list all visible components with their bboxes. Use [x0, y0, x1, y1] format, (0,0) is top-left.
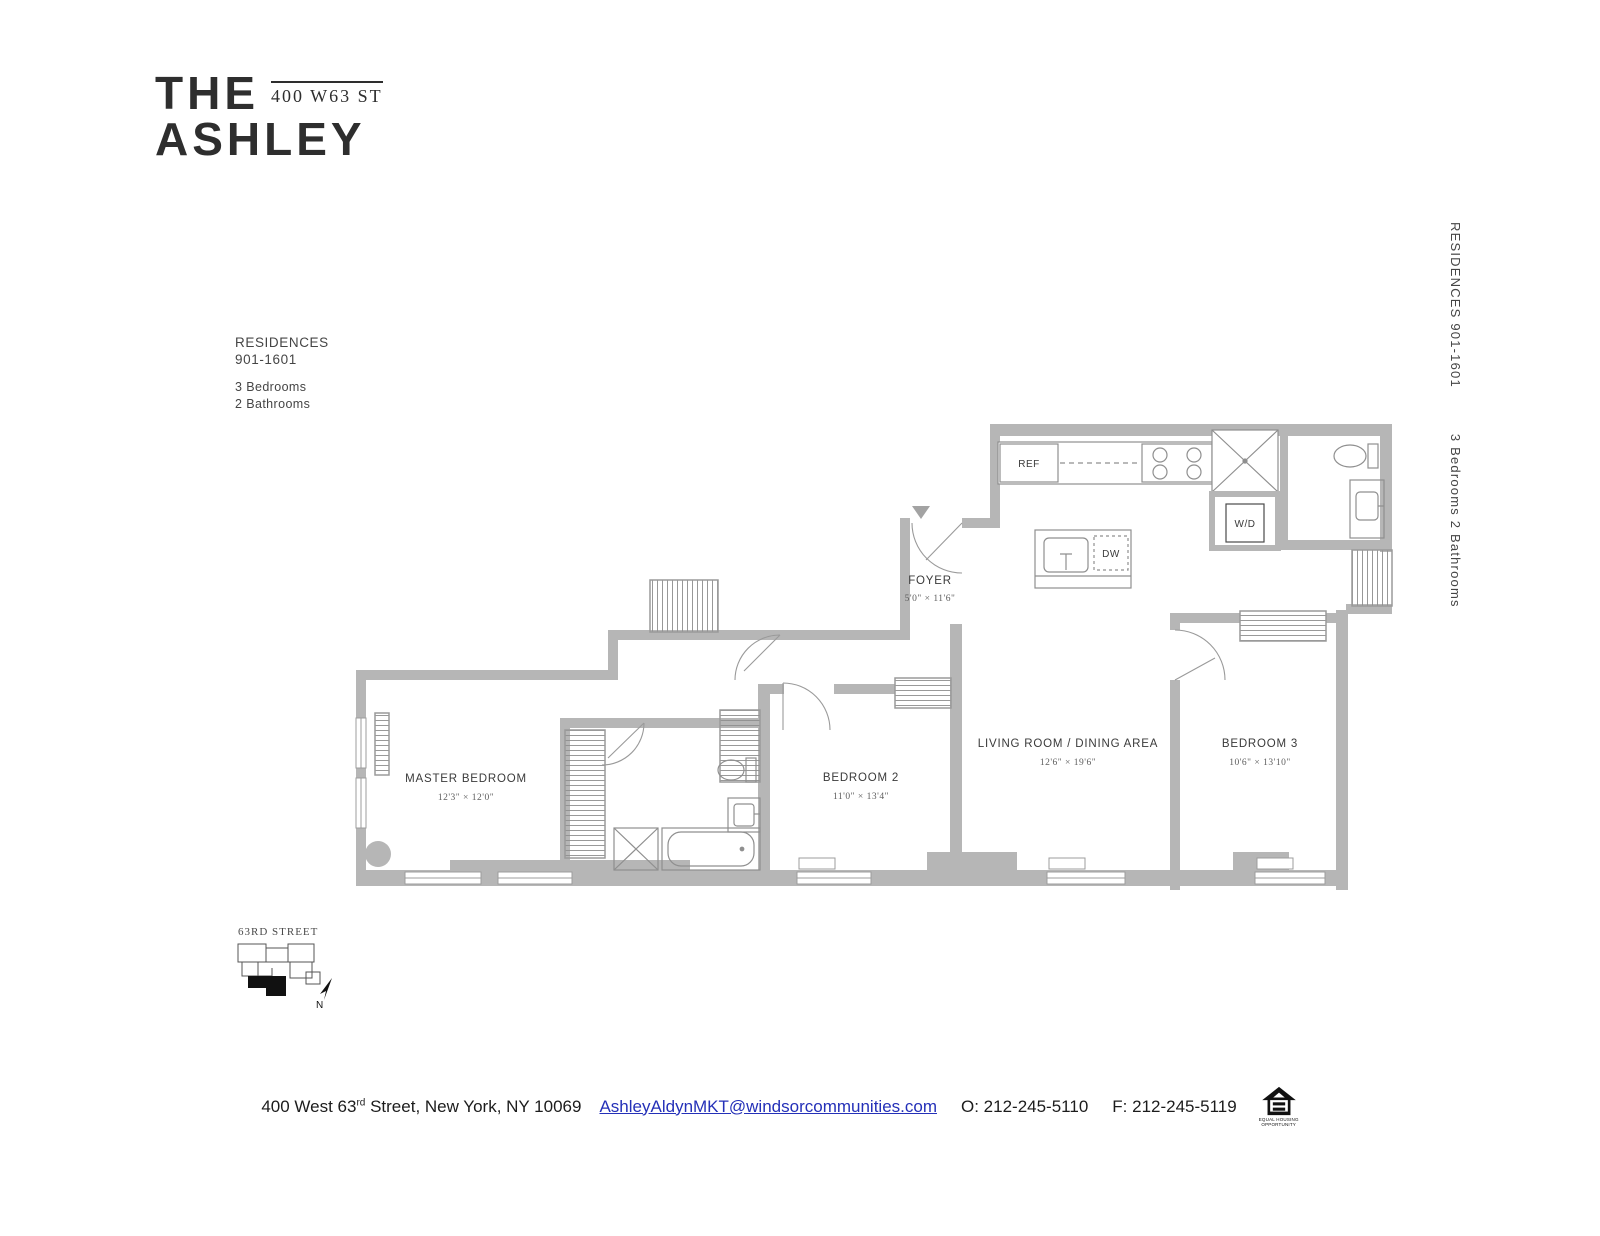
footer-office-phone: O: 212-245-5110 — [961, 1097, 1088, 1117]
sink-2 — [1356, 492, 1378, 520]
residence-range: 901-1601 — [235, 351, 329, 368]
bedroom3-label: BEDROOM 3 — [1222, 738, 1298, 750]
brand-logo: THE 400 W63 ST ASHLEY — [155, 72, 383, 162]
compass: N — [316, 978, 332, 1011]
bedroom2-closet — [895, 678, 951, 708]
site-key-map: 63RD STREET N — [228, 926, 343, 1021]
living-room-dims: 12'6" × 19'6" — [1040, 758, 1096, 768]
master-bedroom-dims: 12'3" × 12'0" — [438, 793, 494, 803]
stove — [1142, 444, 1212, 482]
unit-location-marker — [248, 976, 286, 996]
dw-label: DW — [1102, 549, 1120, 560]
brand-name-ashley: ASHLEY — [155, 116, 383, 162]
master-radiator — [375, 713, 389, 775]
footer: 400 West 63rd Street, New York, NY 10069… — [0, 1086, 1560, 1127]
north-arrow — [320, 978, 332, 1000]
master-bedroom-label: MASTER BEDROOM — [405, 773, 527, 785]
equal-housing-logo: EQUAL HOUSINGOPPORTUNITY — [1259, 1086, 1299, 1127]
bedroom3-dims: 10'6" × 13'10" — [1229, 758, 1291, 768]
street-label: 63RD STREET — [238, 926, 343, 938]
hall-closet — [650, 580, 718, 632]
foyer-label: FOYER — [908, 575, 952, 587]
bedroom2-label: BEDROOM 2 — [823, 772, 899, 784]
side-vertical-label: RESIDENCES 901-16013 Bedrooms 2 Bathroom… — [1448, 222, 1463, 982]
footer-fax-phone: F: 212-245-5119 — [1112, 1097, 1236, 1117]
bedroom3-door — [1175, 630, 1225, 680]
brand-name-the: THE — [155, 72, 259, 114]
side-residences-label: RESIDENCES 901-1601 — [1448, 222, 1463, 388]
footer-email-link[interactable]: AshleyAldynMKT@windsorcommunities.com — [599, 1097, 937, 1117]
living-room-label: LIVING ROOM / DINING AREA — [978, 738, 1158, 750]
residence-bedrooms: 3 Bedrooms — [235, 379, 329, 396]
residence-info: RESIDENCES 901-1601 3 Bedrooms 2 Bathroo… — [235, 334, 329, 413]
sink-1 — [734, 804, 754, 826]
bath2-fixtures — [1212, 430, 1384, 548]
entry-marker — [912, 506, 930, 519]
brand-address-badge: 400 W63 ST — [271, 81, 383, 107]
floorplan-drawing: MASTER BEDROOM 12'3" × 12'0" BEDROOM 2 1… — [350, 418, 1395, 893]
ref-label: REF — [1018, 459, 1040, 470]
footer-address: 400 West 63rd Street, New York, NY 10069 — [261, 1097, 581, 1117]
residence-bathrooms: 2 Bathrooms — [235, 396, 329, 413]
wd-label: W/D — [1235, 519, 1256, 530]
bath1-door — [602, 723, 644, 765]
compass-n: N — [316, 1000, 323, 1011]
plan-closets-h — [375, 611, 1326, 858]
master-door — [735, 635, 780, 680]
vanity-1 — [728, 798, 760, 832]
bedroom3-closet — [1240, 611, 1326, 641]
bedroom2-door — [783, 683, 830, 730]
right-closet — [1352, 550, 1392, 606]
vanity-2 — [1350, 480, 1384, 538]
toilet-2 — [1334, 445, 1366, 467]
hall-linen-closet — [720, 710, 760, 782]
master-closet — [565, 730, 605, 858]
bedroom2-dims: 11'0" × 13'4" — [833, 792, 889, 802]
foyer-dims: 5'0" × 11'6" — [905, 594, 956, 604]
site-map-drawing: N — [228, 938, 343, 1016]
entry-door — [912, 523, 962, 573]
side-bedsbaths-label: 3 Bedrooms 2 Bathrooms — [1448, 434, 1463, 608]
residence-title: RESIDENCES — [235, 334, 329, 351]
